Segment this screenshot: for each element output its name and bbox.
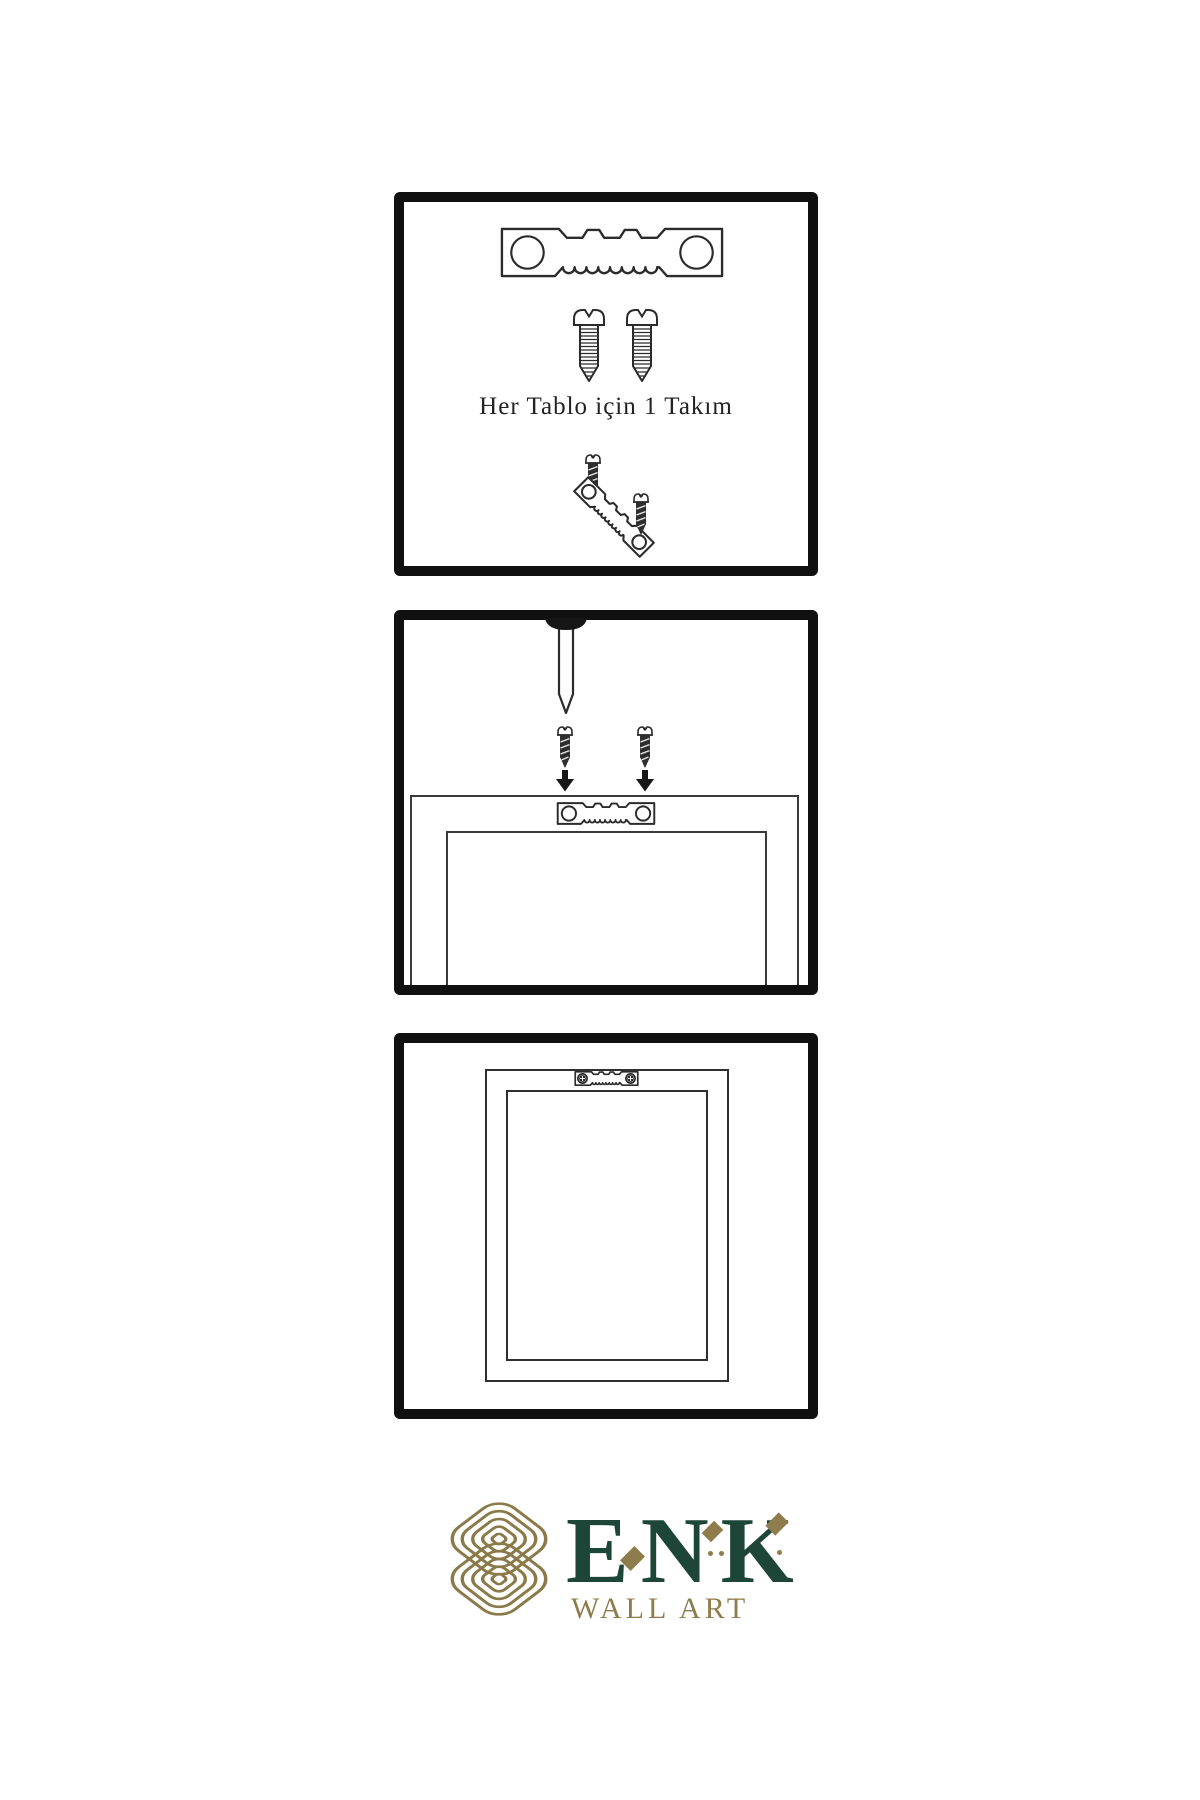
mini-screw-icon	[631, 492, 651, 536]
nail-icon	[544, 618, 588, 718]
screw-icon	[570, 306, 608, 384]
brand-tagline: WALL ART	[571, 1594, 749, 1624]
instruction-sheet: Her Tablo için 1 Takım	[0, 0, 1200, 1800]
panel-hang-frame	[394, 1033, 818, 1419]
screw-icon	[623, 306, 661, 384]
arrow-down-icon	[635, 770, 655, 792]
dot-accent-icon	[719, 1551, 724, 1556]
kit-caption: Her Tablo için 1 Takım	[404, 393, 808, 421]
panel-hardware-kit: Her Tablo için 1 Takım	[394, 192, 818, 576]
dot-accent-icon	[708, 1551, 713, 1556]
mini-screw-icon	[635, 725, 655, 769]
picture-frame-inner	[506, 1090, 708, 1361]
sawtooth-hanger-with-screws-icon	[573, 1070, 640, 1087]
dot-accent-icon	[777, 1550, 782, 1555]
sawtooth-hanger-icon	[554, 801, 658, 826]
sawtooth-hanger-icon	[493, 224, 731, 281]
knot-logo-icon	[435, 1494, 563, 1624]
mini-screw-icon	[555, 725, 575, 769]
brand-wordmark: ENK	[566, 1504, 806, 1598]
picture-frame-inner	[446, 831, 767, 985]
arrow-down-icon	[555, 770, 575, 792]
panel-mark-wall	[394, 610, 818, 995]
